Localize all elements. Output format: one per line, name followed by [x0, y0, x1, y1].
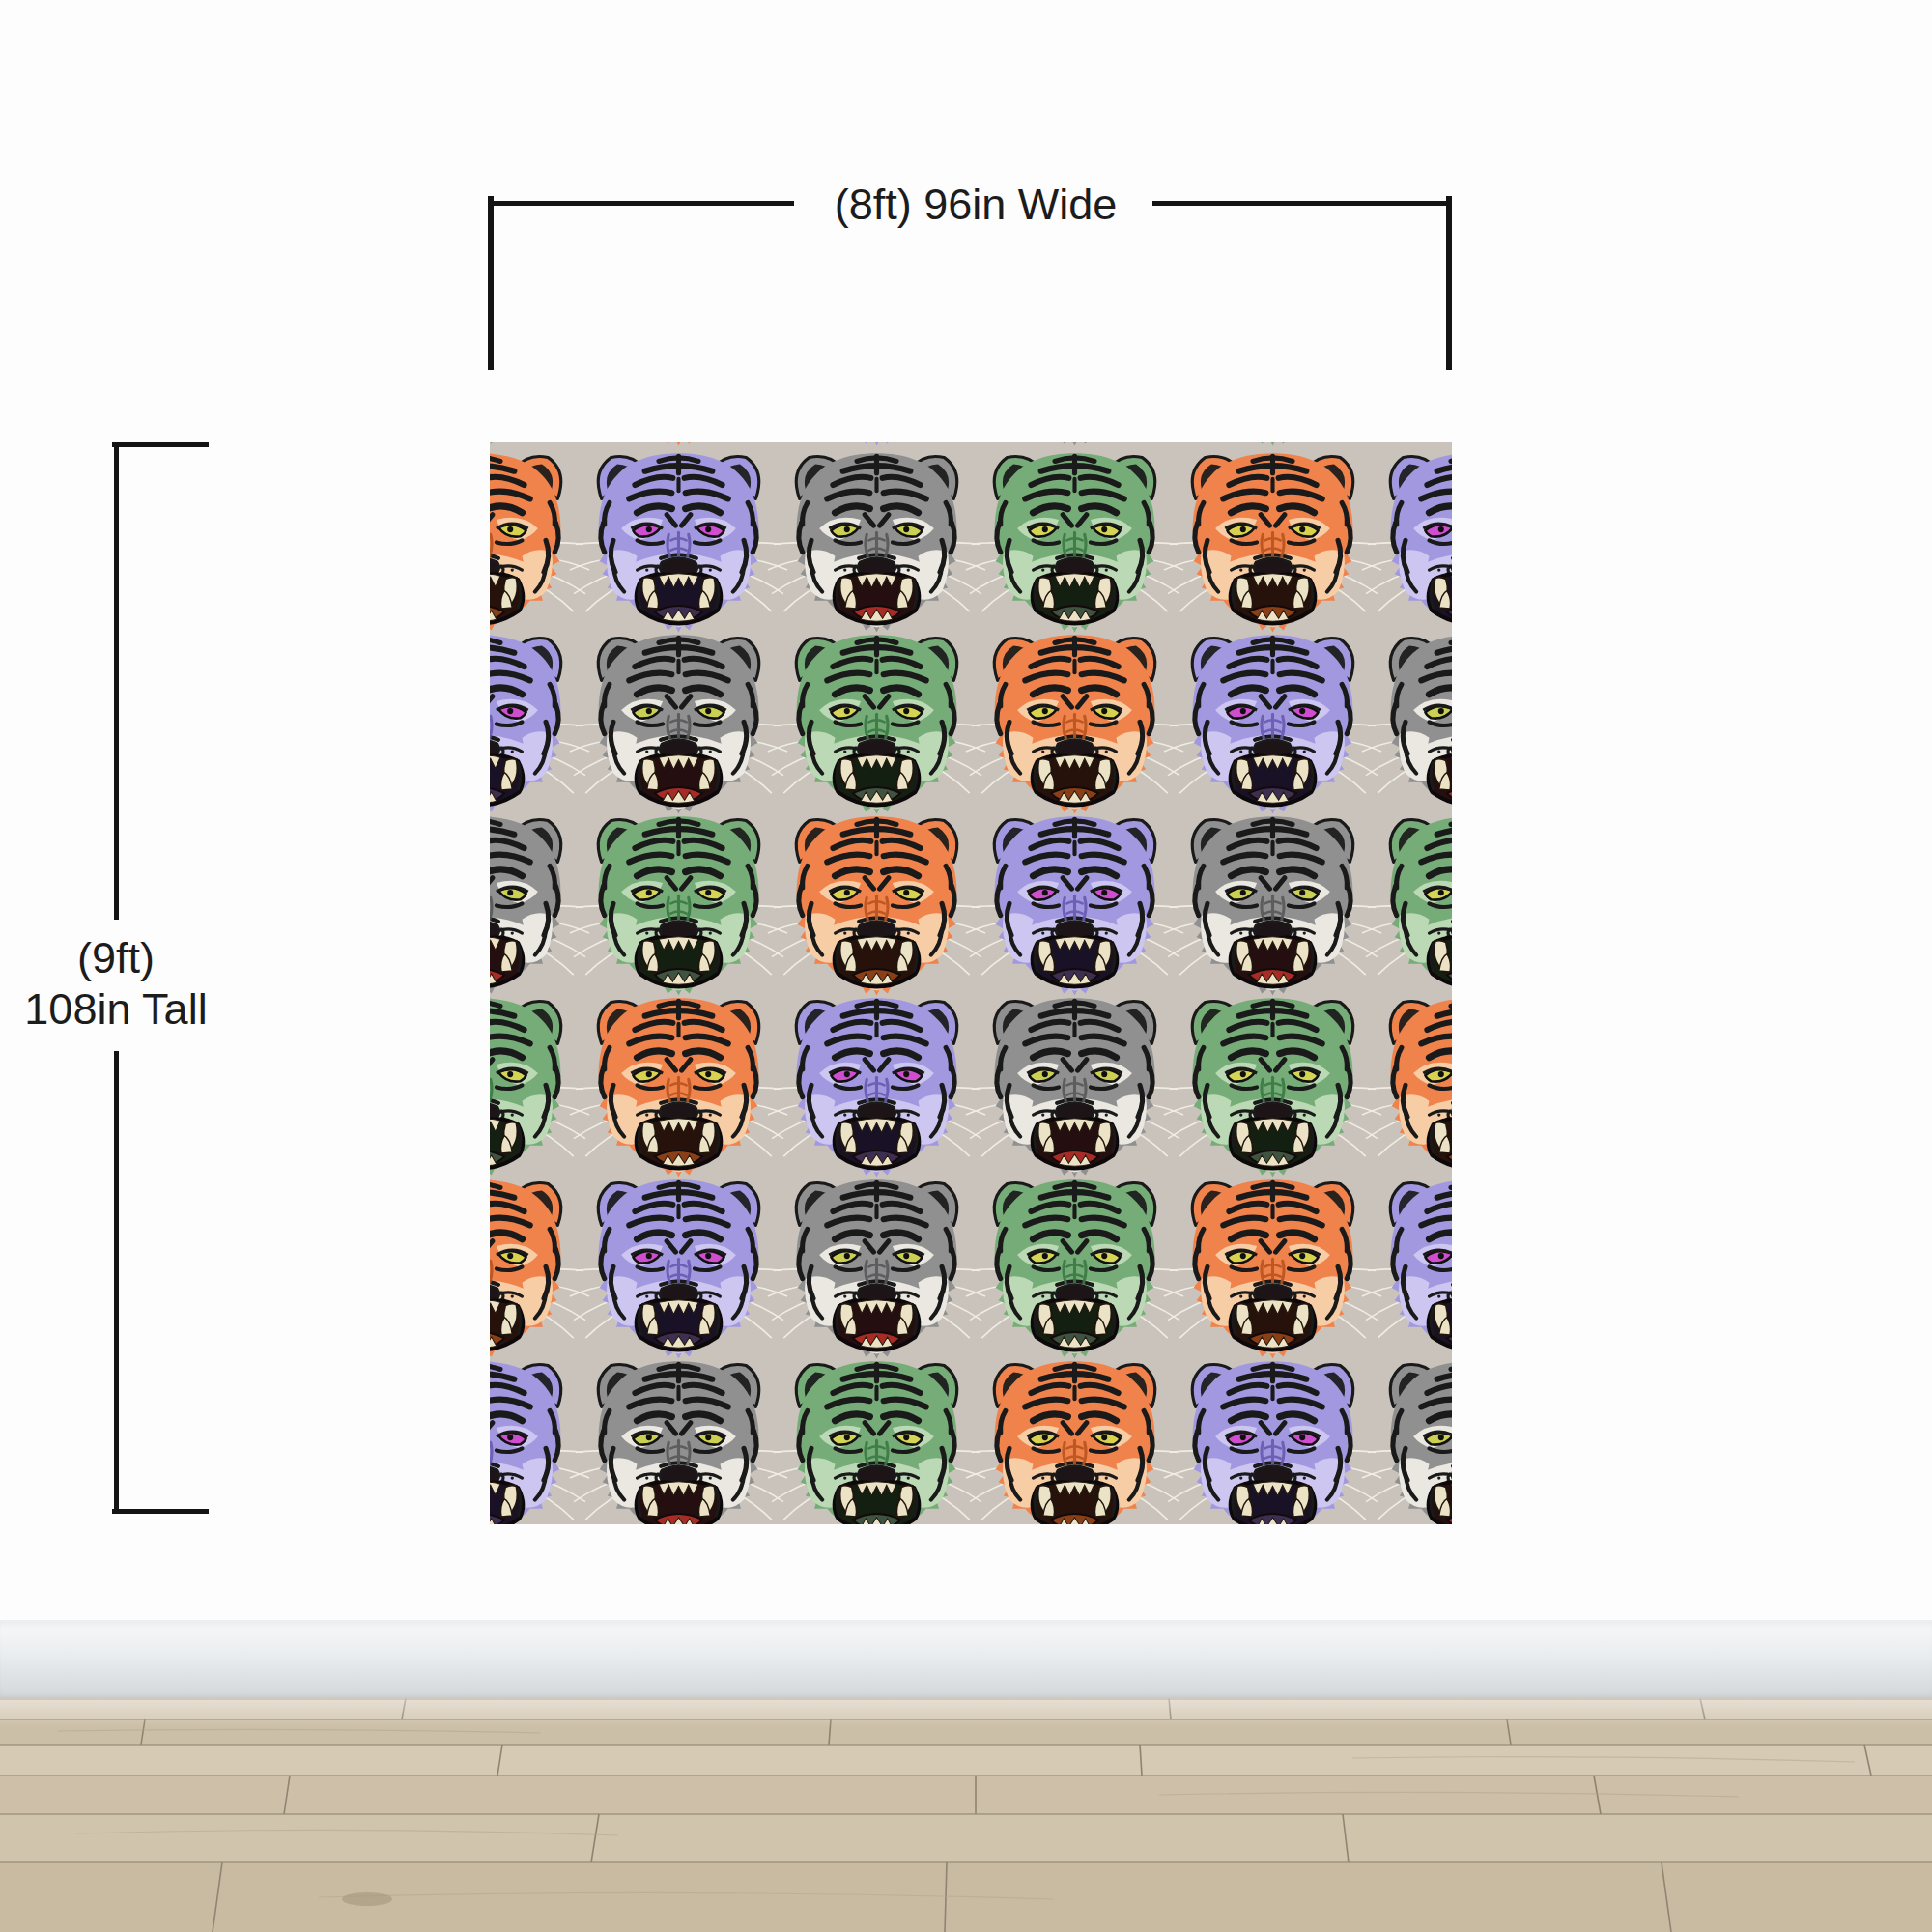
height-dimension-line-bottom	[114, 1051, 119, 1514]
width-dimension-right-tick	[1446, 196, 1452, 370]
tiger-face	[490, 805, 580, 1012]
height-dimension-label-line2: 108in Tall	[0, 983, 261, 1035]
height-dimension-label-line1: (9ft)	[0, 932, 261, 983]
tiger-face	[1174, 1350, 1372, 1524]
tiger-face	[580, 442, 778, 649]
tiger-face	[778, 442, 976, 649]
tiger-face	[580, 1168, 778, 1376]
tiger-face	[1372, 1168, 1452, 1376]
tiger-face	[778, 986, 976, 1194]
tiger-face	[1372, 1350, 1452, 1524]
tiger-face	[976, 1350, 1174, 1524]
tiger-face	[1174, 805, 1372, 1012]
room-scene: (8ft) 96in Wide (9ft) 108in Tall	[0, 0, 1932, 1932]
tiger-face	[580, 623, 778, 831]
tiger-face	[976, 986, 1174, 1194]
tiger-face	[778, 623, 976, 831]
baseboard	[0, 1620, 1932, 1700]
width-dimension-line-left	[490, 201, 794, 206]
tiger-face	[490, 1350, 580, 1524]
tiger-face	[1372, 623, 1452, 831]
tiger-face	[1372, 805, 1452, 1012]
tiger-face	[976, 623, 1174, 831]
width-dimension-left-tick	[488, 196, 494, 370]
height-dimension-bottom-tick	[112, 1509, 209, 1514]
floor-planks	[0, 1698, 1932, 1932]
tiger-face	[1174, 623, 1372, 831]
wood-floor	[0, 1698, 1932, 1932]
tiger-face	[778, 1350, 976, 1524]
tiger-face	[490, 986, 580, 1194]
tiger-face	[1372, 442, 1452, 649]
tiger-face	[580, 986, 778, 1194]
tiger-face	[976, 805, 1174, 1012]
tiger-face	[1174, 986, 1372, 1194]
tiger-face	[490, 623, 580, 831]
tiger-face	[778, 1168, 976, 1376]
tiger-face	[976, 1168, 1174, 1376]
width-dimension-label: (8ft) 96in Wide	[782, 181, 1169, 229]
tiger-face	[1174, 1168, 1372, 1376]
tiger-face	[976, 442, 1174, 649]
tiger-face	[580, 805, 778, 1012]
height-dimension-line-top	[114, 442, 119, 920]
wallpaper-mural	[490, 442, 1452, 1524]
tiger-face	[490, 442, 580, 649]
tiger-face	[1372, 986, 1452, 1194]
tiger-face	[1174, 442, 1372, 649]
height-dimension-label: (9ft) 108in Tall	[0, 932, 261, 1035]
tiger-face	[580, 1350, 778, 1524]
tiger-face	[778, 805, 976, 1012]
height-dimension-top-tick	[112, 442, 209, 447]
width-dimension-line-right	[1152, 201, 1452, 206]
tiger-face	[490, 1168, 580, 1376]
